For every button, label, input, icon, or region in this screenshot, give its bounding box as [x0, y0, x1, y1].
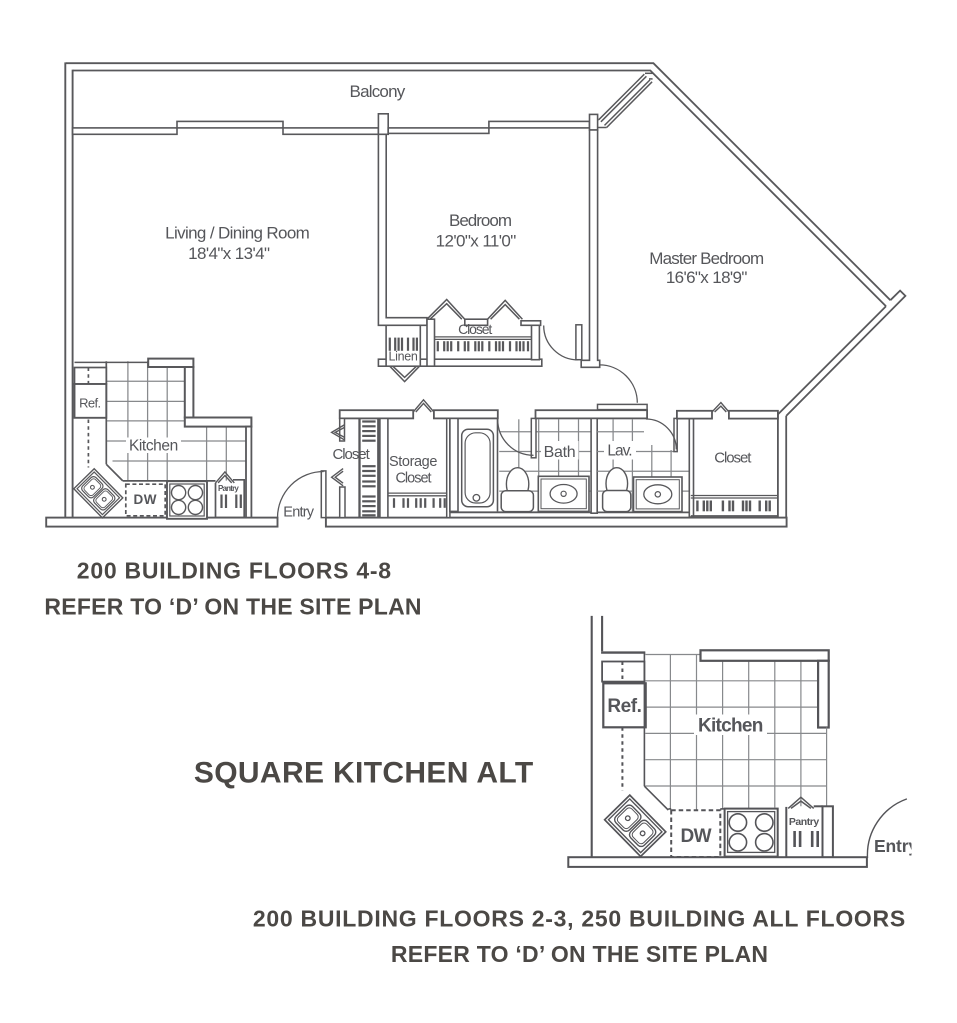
svg-text:Master Bedroom: Master Bedroom: [649, 249, 764, 268]
svg-text:DW: DW: [134, 492, 158, 507]
svg-text:Linen: Linen: [388, 350, 417, 364]
svg-text:12'0"x 11'0": 12'0"x 11'0": [436, 232, 517, 251]
svg-text:Balcony: Balcony: [350, 82, 406, 101]
svg-text:Ref.: Ref.: [607, 696, 641, 717]
svg-text:Closet: Closet: [458, 321, 492, 337]
svg-text:Storage: Storage: [389, 454, 437, 470]
svg-text:Closet: Closet: [395, 471, 431, 487]
svg-text:Pantry: Pantry: [218, 484, 239, 493]
svg-text:DW: DW: [680, 826, 711, 847]
svg-text:Ref.: Ref.: [79, 396, 100, 411]
svg-text:REFER TO ‘D’ ON THE SITE PLAN: REFER TO ‘D’ ON THE SITE PLAN: [391, 941, 768, 967]
svg-text:SQUARE KITCHEN ALT: SQUARE KITCHEN ALT: [194, 757, 534, 790]
svg-text:Lav.: Lav.: [607, 443, 631, 460]
svg-text:Pantry: Pantry: [789, 816, 819, 828]
svg-text:Closet: Closet: [714, 450, 752, 467]
svg-text:200 BUILDING FLOORS 4-8: 200 BUILDING FLOORS 4-8: [77, 558, 392, 584]
svg-text:REFER TO ‘D’ ON THE SITE PLAN: REFER TO ‘D’ ON THE SITE PLAN: [44, 593, 421, 619]
svg-text:16'6"x 18'9": 16'6"x 18'9": [666, 268, 748, 287]
svg-text:Closet: Closet: [332, 446, 370, 463]
svg-text:Living / Dining Room: Living / Dining Room: [165, 224, 310, 243]
svg-text:Bath: Bath: [544, 444, 576, 461]
svg-text:Kitchen: Kitchen: [129, 437, 178, 454]
svg-text:Kitchen: Kitchen: [698, 716, 763, 737]
svg-text:200 BUILDING FLOORS 2-3, 250 B: 200 BUILDING FLOORS 2-3, 250 BUILDING AL…: [253, 906, 906, 932]
svg-text:Bedroom: Bedroom: [449, 211, 512, 230]
svg-text:18'4"x 13'4": 18'4"x 13'4": [188, 244, 270, 263]
svg-text:Entry: Entry: [283, 505, 315, 521]
